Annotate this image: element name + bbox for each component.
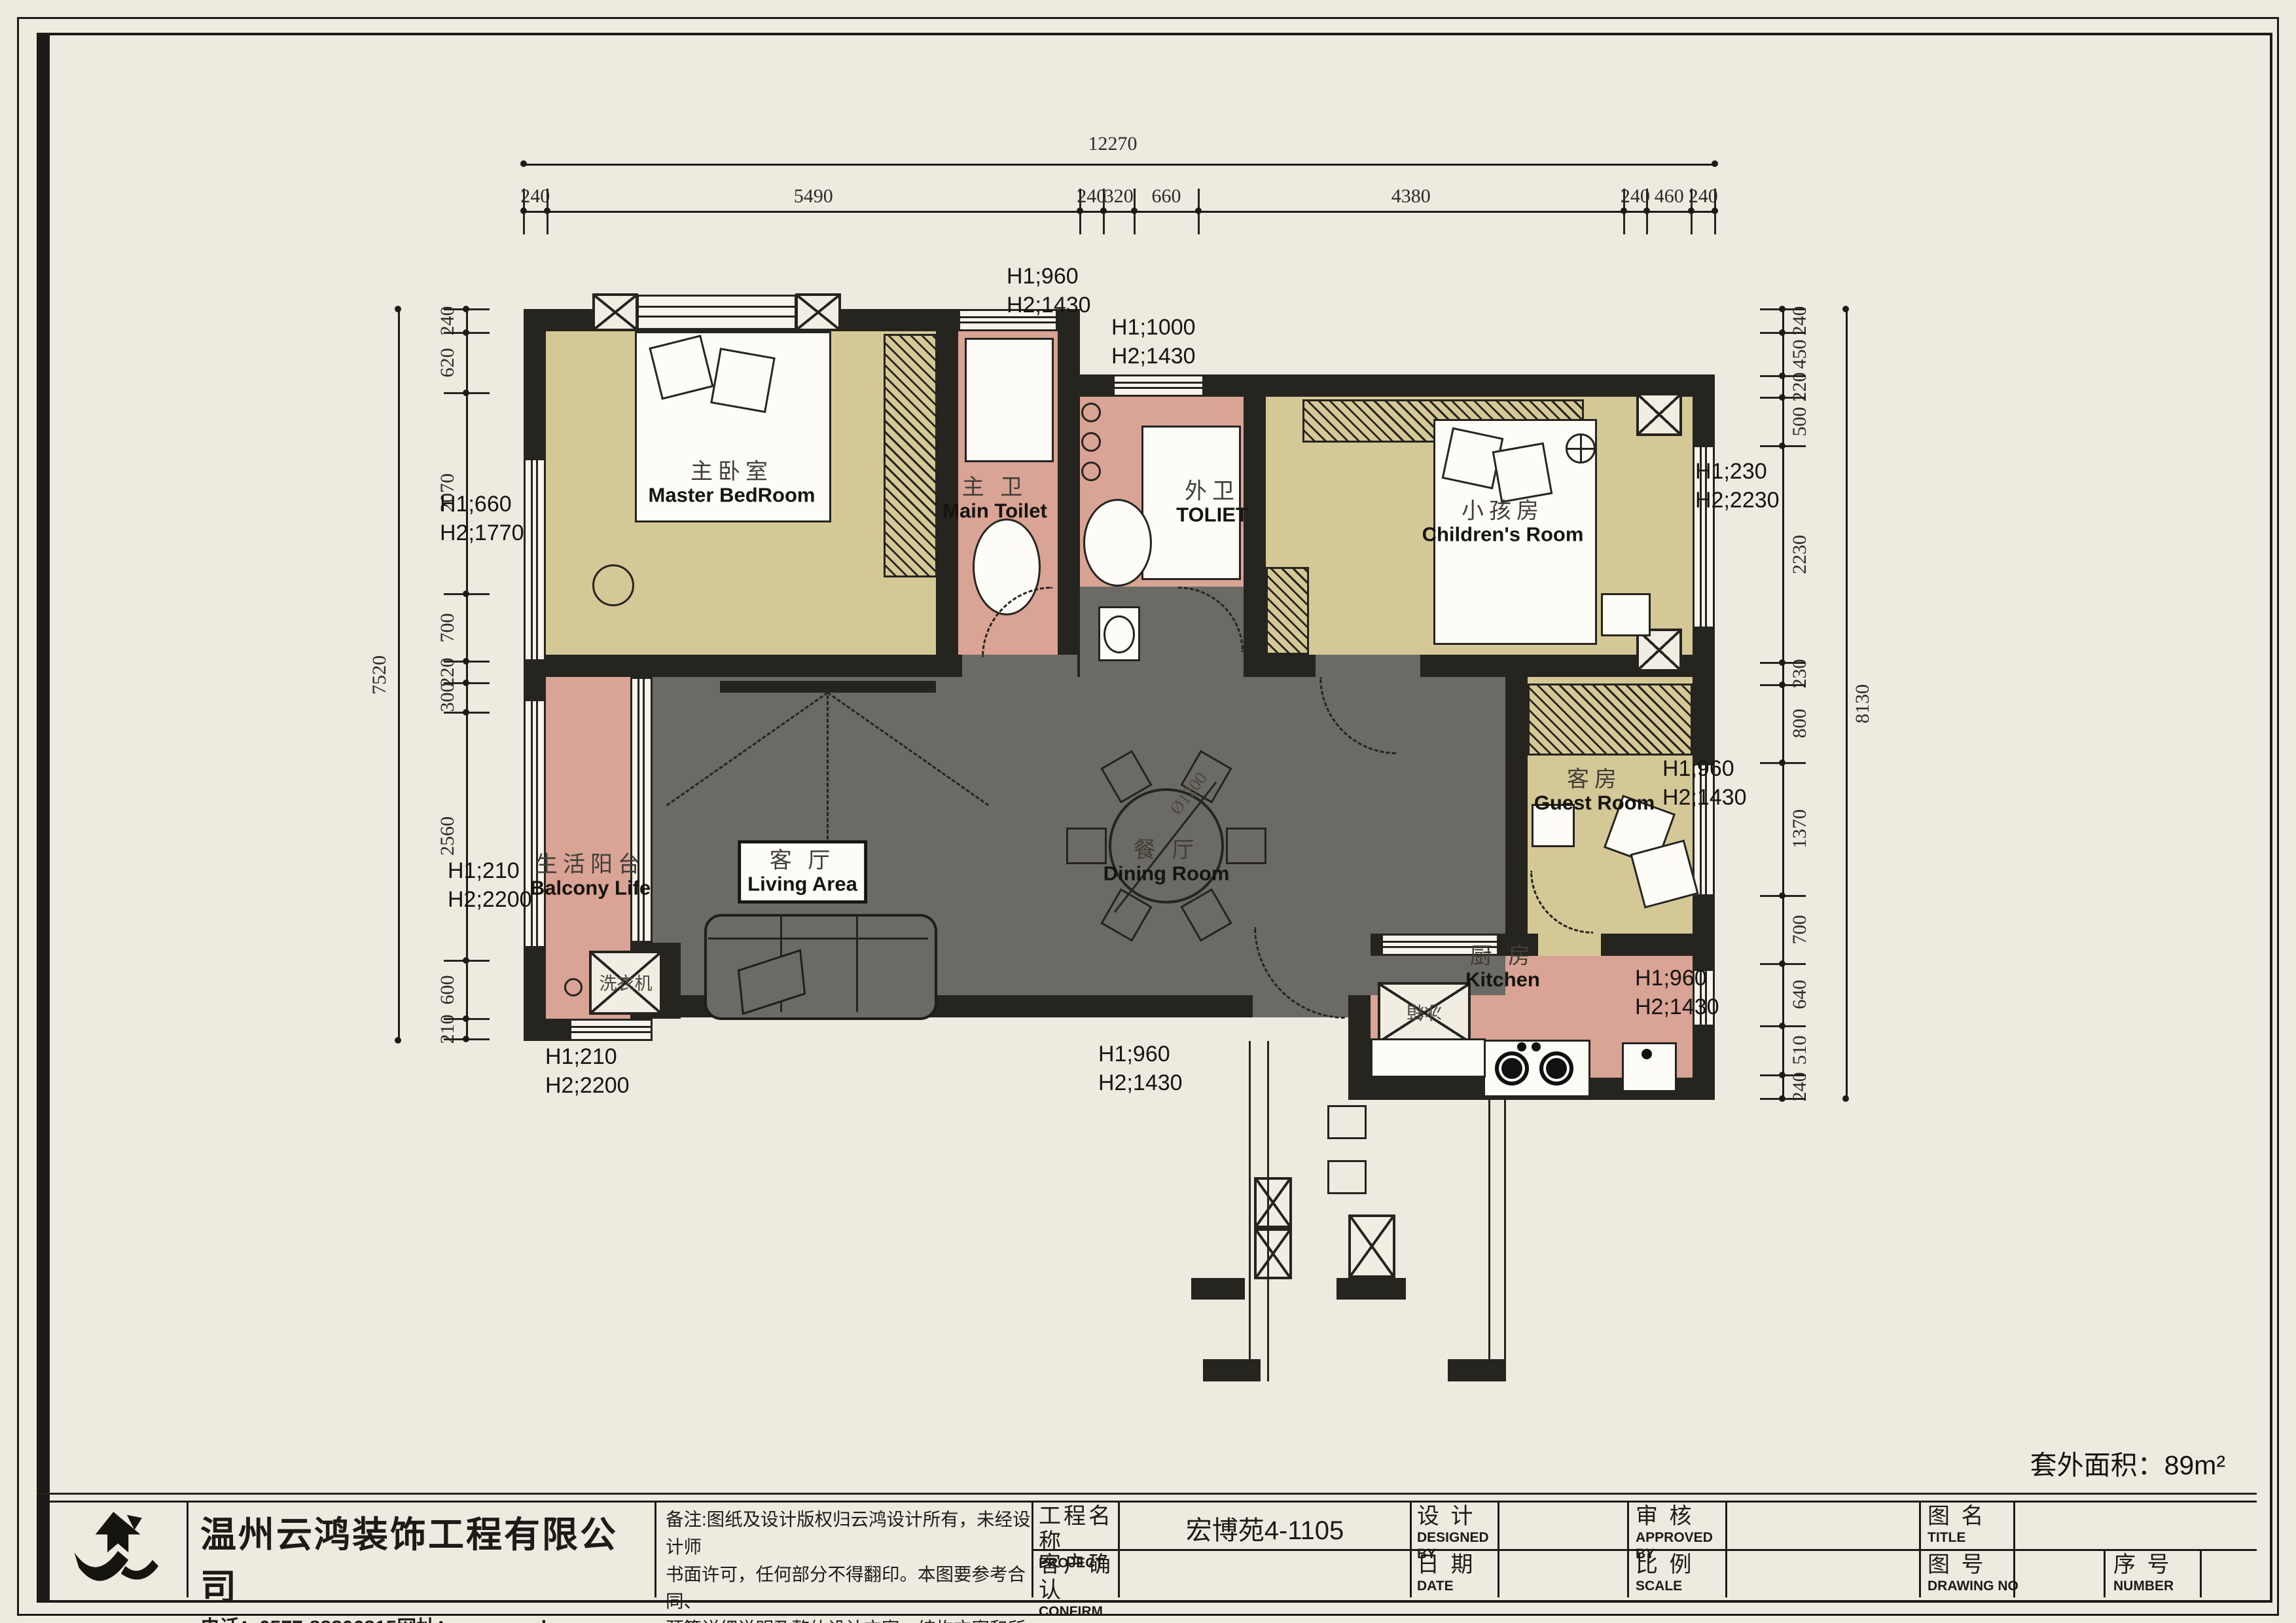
- drawingno-label-en: DRAWING NO: [1928, 1578, 2013, 1594]
- room-name-zh: 厨 房: [1465, 944, 1540, 968]
- room-name-zh: 生活阳台: [530, 852, 651, 877]
- bay-window: [637, 295, 797, 330]
- drawing-sheet: 1227024054902403206604380240460240752024…: [0, 0, 2296, 1623]
- basin-bowl: [1103, 615, 1135, 653]
- desk: [1601, 593, 1651, 636]
- dim-tick-dot: [1621, 208, 1627, 214]
- stove-knob: [1532, 1042, 1541, 1051]
- dim-tick-dot: [1643, 208, 1650, 214]
- bay-window-pier: [592, 293, 638, 331]
- wall: [1348, 995, 1371, 1100]
- tv-cabinet: [720, 681, 936, 693]
- dim-seg-right: 500: [1789, 382, 1811, 461]
- confirm-value-cell: [1118, 1549, 1410, 1597]
- company-cell: 温州云鸿装饰工程有限公司 电话：0577-88806815网址：www.yunh…: [187, 1501, 655, 1597]
- basin-tap: [1081, 432, 1101, 452]
- scale-label-en: SCALE: [1636, 1578, 1725, 1594]
- duct-shaft: [1636, 393, 1682, 436]
- shower: [965, 338, 1054, 462]
- window: [1113, 374, 1204, 397]
- dim-seg-left: 210: [437, 990, 459, 1068]
- dim-tick-dot: [1779, 306, 1785, 312]
- dim-total-line: [524, 164, 1715, 166]
- dim-tick-dot: [1712, 208, 1718, 214]
- dim-total-right: 8130: [1852, 665, 1874, 743]
- dim-tick-dot: [1131, 208, 1138, 214]
- stair-shaft: [1254, 1228, 1292, 1279]
- pillow: [710, 348, 776, 413]
- dim-seg-right: 800: [1789, 684, 1811, 763]
- lobby-wall-line: [1504, 1100, 1506, 1381]
- height-label: H1;660 H2;1770: [440, 490, 524, 547]
- item-label-washing-machine: 洗衣机: [600, 970, 653, 995]
- date-label-en: DATE: [1417, 1578, 1498, 1594]
- dim-tick-dot: [1779, 659, 1785, 666]
- dim-total-top: 12270: [1073, 133, 1152, 155]
- dim-seg-left: 300: [437, 658, 459, 737]
- hall-cabinet: [1266, 567, 1309, 655]
- number-label-zh: 序 号: [2113, 1552, 2200, 1578]
- number-value-cell: [2200, 1549, 2257, 1597]
- dim-tick-dot: [463, 957, 469, 964]
- notes-cell: 备注:图纸及设计版权归云鸿设计所有，未经设计师 书面许可，任何部分不得翻印。本图…: [655, 1501, 1031, 1597]
- dim-seg-right: 2230: [1789, 515, 1811, 594]
- dim-tick-dot: [1688, 208, 1695, 214]
- dim-tick-dot: [463, 1015, 469, 1022]
- dim-tick-dot: [463, 1036, 469, 1042]
- dim-total-line: [398, 309, 400, 1040]
- wall: [1191, 1278, 1245, 1300]
- height-label: H1;960 H2;1430: [1007, 262, 1091, 319]
- height-label: H1;960 H2;1430: [1635, 964, 1719, 1021]
- dim-tick-dot: [520, 160, 527, 167]
- sofa-seam: [856, 917, 858, 1012]
- floor-plan: 1227024054902403206604380240460240752024…: [0, 0, 2296, 1623]
- scale-value-cell: [1725, 1549, 1919, 1597]
- project-label-cell: 工程名称 PROJECT: [1031, 1501, 1118, 1549]
- room-label-guest-toilet: 外卫TOLIET: [1176, 479, 1248, 526]
- dim-tick-dot: [1195, 208, 1202, 214]
- master-wardrobe: [884, 334, 937, 577]
- dim-tick-dot: [1779, 1095, 1785, 1102]
- room-label-living-area: 客 厅Living Area: [738, 840, 867, 903]
- dim-seg-top: 660: [1127, 185, 1206, 208]
- room-name-zh: 客 厅: [747, 848, 857, 873]
- dim-tick-dot: [1779, 373, 1785, 379]
- dim-tick-dot: [520, 208, 527, 214]
- room-name-en: TOLIET: [1176, 504, 1248, 526]
- drawingno-label-cell: 图 号 DRAWING NO: [1919, 1549, 2013, 1597]
- confirm-label-cell: 客户确认 CONFIRM: [1031, 1549, 1118, 1597]
- room-label-balcony: 生活阳台Balcony Life: [530, 852, 651, 899]
- title-value-cell: [2013, 1501, 2257, 1549]
- door-opening: [1316, 655, 1420, 677]
- room-label-guest-room: 客房Guest Room: [1534, 767, 1655, 814]
- sofa: [704, 914, 937, 1020]
- design-value-cell: [1498, 1501, 1627, 1549]
- dim-tick-dot: [1779, 443, 1785, 449]
- title-label-en: TITLE: [1928, 1529, 2013, 1546]
- dim-tick-dot: [1779, 394, 1785, 401]
- room-name-en: Children's Room: [1422, 524, 1584, 546]
- window: [524, 458, 546, 661]
- dining-chair: [1226, 828, 1266, 864]
- dim-tick-dot: [1779, 329, 1785, 336]
- room-name-zh: 餐 厅: [1103, 838, 1230, 862]
- date-value-cell: [1498, 1549, 1627, 1597]
- height-label: H1;210 H2;2200: [545, 1042, 630, 1100]
- basin-tap: [1081, 462, 1101, 481]
- height-label: H1;960 H2;1430: [1098, 1040, 1183, 1097]
- dim-seg-line: [466, 309, 468, 1040]
- dim-tick-dot: [395, 306, 401, 312]
- door-opening: [962, 655, 1077, 677]
- number-label-cell: 序 号 NUMBER: [2104, 1549, 2200, 1597]
- drawingno-label-zh: 图 号: [1928, 1552, 2013, 1578]
- room-name-zh: 外卫: [1176, 479, 1248, 503]
- dim-tick-dot: [463, 306, 469, 312]
- stove-knob: [1517, 1042, 1526, 1051]
- project-value-cell: 宏博苑4-1105: [1118, 1501, 1410, 1549]
- height-label: H1;230 H2;2230: [1695, 457, 1780, 515]
- project-label-zh: 工程名称: [1039, 1504, 1118, 1555]
- room-name-zh: 主卧室: [649, 460, 816, 484]
- project-name: 宏博苑4-1105: [1120, 1509, 1410, 1547]
- wall: [1505, 677, 1528, 945]
- stove-burner: [1495, 1051, 1529, 1085]
- bay-window-pier: [795, 293, 841, 331]
- lobby-wall-line: [1249, 1041, 1251, 1381]
- guest-wardrobe: [1528, 684, 1693, 756]
- height-label: H1;960 H2;1430: [1662, 754, 1747, 812]
- design-label-zh: 设 计: [1417, 1504, 1498, 1529]
- lobby-column: [1327, 1105, 1367, 1139]
- company-contact: 电话：0577-88806815网址：www.yunhong.cc: [200, 1611, 655, 1623]
- balcony-slider: [630, 677, 653, 943]
- item-label-fridge: 冰箱: [1407, 1001, 1442, 1027]
- lobby-wall-line: [1267, 1041, 1269, 1381]
- approved-value-cell: [1725, 1501, 1919, 1549]
- ceiling-fan-icon: [1566, 433, 1596, 464]
- confirm-label-en: CONFIRM: [1039, 1603, 1118, 1620]
- scale-label-zh: 比 例: [1636, 1552, 1725, 1578]
- room-label-childrens-room: 小孩房Children's Room: [1422, 499, 1584, 545]
- door-opening: [1538, 934, 1601, 956]
- confirm-label-zh: 客户确认: [1039, 1552, 1118, 1603]
- approved-label-cell: 审 核 APPROVED BY: [1627, 1501, 1725, 1549]
- dim-tick-dot: [1779, 682, 1785, 688]
- titleblock-top-rule: [37, 1493, 2257, 1495]
- date-label-cell: 日 期 DATE: [1410, 1549, 1498, 1597]
- dim-tick-dot: [1077, 208, 1083, 214]
- stove-burner: [1539, 1051, 1573, 1085]
- dim-total-line: [1846, 309, 1848, 1099]
- height-label: H1;210 H2;2200: [448, 856, 532, 914]
- room-name-en: Master BedRoom: [649, 484, 816, 507]
- dim-seg-top: 4380: [1372, 185, 1450, 208]
- dim-tick-dot: [1779, 1072, 1785, 1078]
- wall: [1058, 309, 1080, 677]
- date-label-zh: 日 期: [1417, 1552, 1498, 1578]
- drawingno-value-cell: [2013, 1549, 2104, 1597]
- approved-label-zh: 审 核: [1636, 1504, 1725, 1529]
- height-label: H1;1000 H2;1430: [1111, 313, 1196, 371]
- elevator-shaft: [1348, 1214, 1395, 1278]
- dim-tick-dot: [1779, 960, 1785, 967]
- stair-shaft: [1254, 1177, 1292, 1228]
- dim-tick-dot: [463, 390, 469, 396]
- floor-drain: [564, 978, 583, 996]
- titleblock: 温州云鸿装饰工程有限公司 电话：0577-88806815网址：www.yunh…: [37, 1501, 2257, 1623]
- dim-seg-line: [1782, 309, 1784, 1099]
- dim-seg-right: 1370: [1789, 790, 1811, 868]
- scale-label-cell: 比 例 SCALE: [1627, 1549, 1725, 1597]
- dim-tick-dot: [1779, 892, 1785, 899]
- room-name-zh: 客房: [1534, 767, 1655, 792]
- dim-seg-right: 240: [1789, 1048, 1811, 1126]
- room-name-zh: 小孩房: [1422, 499, 1584, 523]
- toilet: [1083, 499, 1152, 587]
- dim-seg-left: 620: [437, 323, 459, 402]
- room-label-dining-room: 餐 厅Dining Room: [1103, 838, 1230, 884]
- wall: [1336, 1278, 1406, 1300]
- dim-tick-dot: [1842, 306, 1849, 312]
- dim-seg-line: [524, 211, 1715, 213]
- area-note: 套外面积：89m²: [2001, 1443, 2225, 1482]
- room-name-en: Main Toilet: [942, 500, 1047, 522]
- dim-tick-dot: [1842, 1095, 1849, 1102]
- company-logo-icon: [68, 1510, 166, 1592]
- window: [569, 1019, 653, 1041]
- side-table: [592, 564, 634, 606]
- room-name-zh: 主 卫: [942, 475, 1047, 500]
- wall: [1244, 397, 1266, 677]
- faucet: [1641, 1049, 1652, 1059]
- title-label-cell: 图 名 TITLE: [1919, 1501, 2013, 1549]
- dim-tick-dot: [1779, 759, 1785, 766]
- dim-tick-dot: [463, 658, 469, 665]
- room-name-en: Balcony Life: [530, 877, 651, 900]
- wall: [1203, 1359, 1261, 1381]
- dim-tick-dot: [463, 680, 469, 686]
- dim-seg-top: 5490: [774, 185, 853, 208]
- logo-cell: [50, 1501, 187, 1599]
- dim-tick-dot: [1712, 160, 1718, 167]
- pillow: [1492, 443, 1553, 503]
- drawing-notes: 备注:图纸及设计版权归云鸿设计所有，未经设计师 书面许可，任何部分不得翻印。本图…: [666, 1506, 1031, 1623]
- dim-seg-top: 240: [496, 185, 575, 208]
- room-name-en: Kitchen: [1465, 969, 1540, 991]
- sofa-seam: [708, 938, 928, 939]
- dim-tick-dot: [463, 709, 469, 716]
- dim-seg-top: 240: [1664, 185, 1742, 208]
- dim-tick-dot: [395, 1037, 401, 1044]
- kitchen-counter: [1371, 1038, 1486, 1078]
- dim-tick-dot: [463, 591, 469, 597]
- dim-tick-dot: [463, 329, 469, 336]
- room-name-en: Living Area: [747, 873, 857, 896]
- room-label-main-toilet: 主 卫Main Toilet: [942, 475, 1047, 522]
- design-label-cell: 设 计 DESIGNED BY: [1410, 1501, 1498, 1549]
- wall: [1448, 1359, 1505, 1381]
- room-name-en: Dining Room: [1103, 863, 1230, 885]
- basin-tap: [1081, 403, 1101, 422]
- title-label-zh: 图 名: [1928, 1504, 2013, 1529]
- room-name-en: Guest Room: [1534, 792, 1655, 814]
- room-label-kitchen: 厨 房Kitchen: [1465, 944, 1540, 991]
- dim-tick-dot: [1779, 1023, 1785, 1029]
- number-label-en: NUMBER: [2113, 1578, 2200, 1594]
- dim-tick-dot: [1100, 208, 1107, 214]
- dim-total-left: 7520: [368, 636, 391, 714]
- lobby-column: [1327, 1160, 1367, 1194]
- company-name: 温州云鸿装饰工程有限公司: [200, 1505, 655, 1610]
- lobby-wall-line: [1488, 1100, 1490, 1381]
- light-axis-dashed: [827, 695, 829, 851]
- dim-tick-dot: [544, 208, 550, 214]
- room-label-master-bedroom: 主卧室Master BedRoom: [649, 460, 816, 506]
- dining-chair: [1066, 828, 1107, 864]
